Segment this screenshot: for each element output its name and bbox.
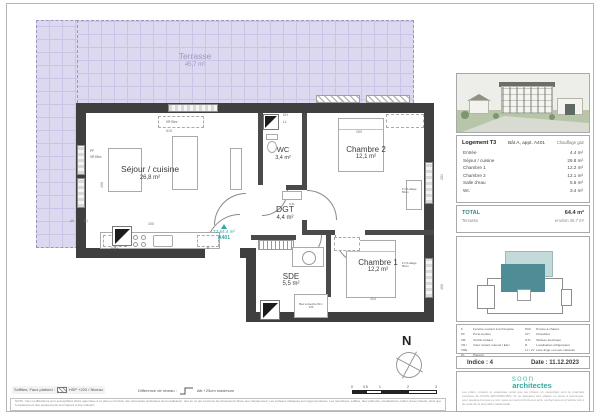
nota-text: NOTA : Des modifications sont susceptibl… [15,400,441,408]
north-letter: N [402,333,411,348]
hob-burner-1 [133,235,138,240]
vr-elec-left-label: VR Elec [90,156,102,160]
scale-tick-05: 0.5 [363,385,368,389]
scale-bar-segments [352,390,437,394]
soffit-hatch-swatch [57,387,67,393]
partition-wc-right-a [302,113,307,190]
shower-tray: Bac à douche 90 x 120 [294,294,328,318]
rendering-left-house [469,100,489,114]
washbasin [302,251,316,265]
site-core-notch [517,289,531,301]
nota-strip: NOTA : Des modifications sont susceptibl… [10,398,446,411]
total-box: TOTAL 64.4 m² Terrasse environ 45.7 m² [456,205,590,233]
dim-kitchen: 305 [148,222,154,226]
site-apartment-highlight [501,264,545,292]
unit-location: Bât A, appt. A401 [508,141,545,146]
sink [153,235,173,247]
level-step-icon [180,387,194,395]
unit-info-box: Logement T3 Bât A, appt. A401 Chauffage … [456,135,590,203]
sde-area: 5,5 m² [270,281,312,288]
wall-bottom-sejour-a [76,248,205,258]
scale-tick-3: 3 [435,385,437,389]
window-sejour-left-1 [77,145,85,175]
rendering-main-building [501,86,553,114]
partition-wc-bottom [286,185,307,190]
soffit-box-sejour [112,226,132,246]
room-label: Chambre 1 [463,164,486,172]
scale-bar: 0 0.5 1 2 3 [352,385,438,395]
room-row-wc: Wc3.4 m² [462,187,584,195]
legend-label: Lave-linge ou Lave-vaisselle [536,348,575,353]
terrace-name: Terrasse [155,52,235,62]
scale-tick-1: 1 [379,385,381,389]
sejour-label: Séjour / cuisine 26,8 m² [105,165,195,182]
placard-chambre1 [334,237,360,251]
marker-apartment-id: A401 [202,235,246,241]
threshold-hatch [258,240,294,250]
room-label: Entrée [463,149,477,157]
terrace-area-value: 45,7 m² [155,62,235,69]
vanity-counter [292,247,324,267]
room-area: 12.1 m² [567,172,583,180]
toilet-tank [266,134,278,140]
total-terrace-label: Terrasse [462,218,478,223]
site-building-wing-right [561,289,572,306]
dim-51: 51 [84,219,88,223]
apartment-marker: T3 64.4 m² A401 [202,224,246,241]
fridge-label: R [207,246,209,250]
terrace-area-left [36,20,78,248]
logo-architectes: architectes [480,382,584,390]
hob-burner-2 [133,242,138,247]
rendering-garage-door [565,104,575,115]
sofa [172,136,198,190]
legend-row: LL / LVLave-linge ou Lave-vaisselle [525,348,585,353]
sde-label: SDE 5,5 m² [270,272,312,288]
room-area: 26.8 m² [567,157,583,165]
date-value: Date : 11.12.2023 [531,360,579,366]
legend-box: FFenêtre ouvrant à la française PFPorte-… [456,324,590,354]
soffit-triangle-sejour [115,229,130,244]
partition-ch1-top-b [365,230,434,235]
ledge-hatch-2 [366,95,410,103]
entrance-triangle-icon [221,224,227,229]
room-area: 12.2 m² [567,164,583,172]
desk-chambre2 [406,180,422,210]
wc-area: 3,4 m² [268,155,298,161]
niveau-label: Différence de niveau : [138,388,177,393]
architect-logo: soon architectes [462,374,584,389]
wc-name: WC [268,146,298,155]
total-terrace-value: environ 45.7 m² [555,218,584,223]
soffites-value: HSP +220 / Niveau [69,387,103,392]
room-area: 5.5 m² [570,179,583,187]
chambre2-name: Chambre 2 [326,145,406,154]
niveau-value: Alti +25cm maximum [197,388,234,393]
sejour-area: 26,8 m² [105,175,195,182]
sejour-name: Séjour / cuisine [105,165,195,175]
terrace-label: Terrasse 45,7 m² [155,52,235,69]
compass-needle-2 [396,358,423,373]
floor-plan-sheet: { "colors":{"teal":"#2fa9a2","wall":"#3f… [0,0,601,416]
dim-chambre2-top: 269 [356,130,362,134]
dgt-name: DGT [262,205,308,215]
washer-label: LL [283,121,287,125]
chambre2-label: Chambre 2 12,1 m² [326,145,406,161]
tv-cabinet [230,148,242,190]
ledge-hatch-1 [316,95,360,103]
window-allege-label-2: F h/b allège 50cm [402,262,420,269]
soffit-box-sde [260,300,280,320]
partition-sde-right [326,235,331,297]
room-label: Chambre 2 [463,172,486,180]
room-row-sejour: Séjour / cuisine26.8 m² [462,157,584,165]
site-plan-box [456,236,590,322]
dim-top: 815 [166,129,172,133]
building-rendering [456,73,590,133]
room-row-entree: Entrée4.4 m² [462,149,584,157]
compass-icon [396,352,422,378]
scale-tick-2: 2 [407,385,409,389]
shower-label: Bac à douche 90 x 120 [297,303,325,310]
legend-column-right: PACPompe à chaleur CHChaudière GTLTablea… [525,327,585,351]
legend-row: VR / VREVolet roulant manuel / Elec [461,343,525,354]
dgt-label: DGT 4,4 m² [262,205,308,222]
rendering-bush-3 [549,114,555,120]
footer-soffites: Soffites, Faux plafond :HSP +220 / Nivea… [12,386,105,394]
footer-niveau: Différence de niveau : Alti +25cm maximu… [136,386,236,396]
architect-logo-box: soon architectes Les plans, croquis et e… [456,371,590,412]
total-value: 64.4 m² [565,210,584,216]
room-row-salledeau: Salle d'eau5.5 m² [462,179,584,187]
legal-text: Les plans, croquis et esquisses, ainsi q… [462,391,584,407]
site-building-wing-left [477,285,495,309]
indice-value: Indice : 4 [467,360,493,366]
room-row-chambre2: Chambre 212.1 m² [462,172,584,180]
vr-elec-top-label: VR Elec [166,121,178,125]
window-chambre1-right [425,258,433,298]
legend-abbr: LL / LV [525,348,536,353]
hob-burner-3 [141,235,146,240]
window-chambre2-right [425,162,433,204]
wall-step [246,248,256,322]
dim-right-upper: 281 [440,174,444,180]
hob-burner-4 [141,242,146,247]
boiler-label: CH [283,114,288,118]
room-row-chambre1: Chambre 112.2 m² [462,164,584,172]
dgt-area: 4,4 m² [262,215,308,222]
room-label: Séjour / cuisine [463,157,494,165]
room-label: Salle d'eau [463,179,486,187]
window-allege-label-1: F h/b allège 50cm [402,188,420,195]
room-area: 3.4 m² [570,187,583,195]
placard-chambre2 [386,114,424,128]
boiler-box [263,114,279,130]
legend-label: Volet roulant manuel / Elec [473,343,510,354]
legend-abbr: VR / VRE [461,343,473,354]
dim-right-lower: 400 [440,284,444,290]
unit-title: Logement T3 [462,140,496,146]
dim-40: 40 [70,219,74,223]
legend-column-left: FFenêtre ouvrant à la française PFPorte-… [461,327,525,351]
rendering-bush-2 [493,113,499,119]
sideboard [158,116,204,128]
wc-label: WC 3,4 m² [268,146,298,161]
dim-sejour-left: 408 [100,182,104,188]
indice-date-strip: Indice : 4 Date : 11.12.2023 [456,356,590,369]
pf-left-label: PF [90,150,94,154]
gtl-box: GTL [282,191,302,200]
wall-top [76,103,434,113]
rendering-bush-1 [461,111,469,119]
window-sejour-left-2 [77,178,85,208]
room-label: Wc [463,187,470,195]
lv-ll-label: LV/LL [111,246,119,250]
bed-chambre2-pillow [339,119,383,130]
unit-heating: Chauffage gaz [557,140,584,145]
soffites-label: Soffites, Faux plafond : [14,387,55,392]
total-label: TOTAL [462,210,480,216]
window-sejour-top [168,104,218,112]
boiler-triangle [265,116,277,128]
dim-chambre1-bottom: 304 [370,297,376,301]
soffit-triangle-sde [263,303,278,318]
chambre2-area: 12,1 m² [326,154,406,161]
room-area: 4.4 m² [570,149,583,157]
scale-tick-0: 0 [351,385,353,389]
sde-name: SDE [270,272,312,281]
